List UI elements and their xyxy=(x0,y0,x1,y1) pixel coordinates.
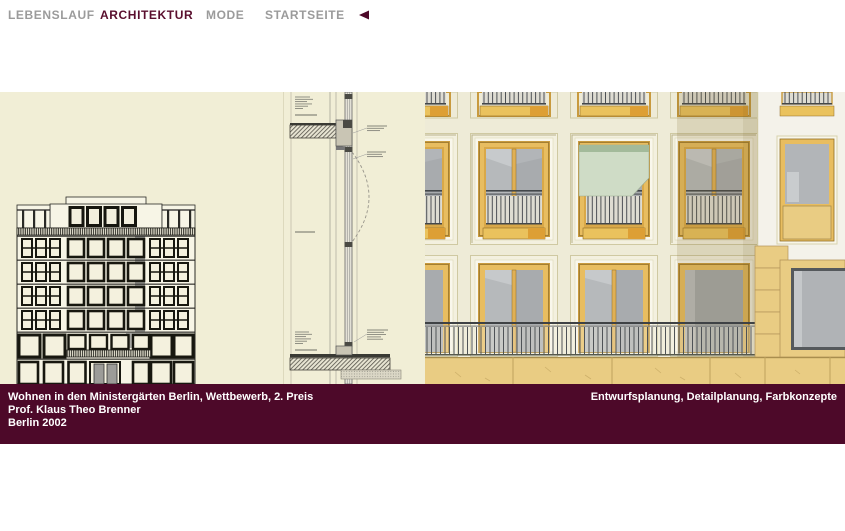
level-labels xyxy=(295,115,317,350)
image-strip xyxy=(0,92,845,384)
building-elevation-drawing xyxy=(0,92,283,384)
detail-section-panel xyxy=(283,92,425,384)
green-awning xyxy=(579,145,649,196)
facade-rendering-panel xyxy=(425,92,845,384)
nav-item-mode[interactable]: MODE xyxy=(206,8,244,22)
back-arrow-icon[interactable] xyxy=(358,10,370,20)
caption-services: Entwurfsplanung, Detailplanung, Farbkonz… xyxy=(591,391,837,404)
entrance-door xyxy=(90,362,120,384)
caption-bar: Wohnen in den Ministergärten Berlin, Wet… xyxy=(0,384,845,444)
sandstone-base xyxy=(425,357,845,384)
elevation-drawing-panel xyxy=(0,92,283,384)
bottom-slab xyxy=(290,346,401,379)
caption-author: Prof. Klaus Theo Brenner xyxy=(8,404,313,417)
page: LEBENSLAUF ARCHITEKTUR MODE STARTSEITE xyxy=(0,0,845,531)
caption-place-year: Berlin 2002 xyxy=(8,417,313,430)
nav-item-architektur[interactable]: ARCHITEKTUR xyxy=(100,8,193,22)
caption-project-title: Wohnen in den Ministergärten Berlin, Wet… xyxy=(8,391,313,404)
window-section-drawing xyxy=(283,92,425,384)
nav-item-lebenslauf[interactable]: LEBENSLAUF xyxy=(8,8,95,22)
caption-left: Wohnen in den Ministergärten Berlin, Wet… xyxy=(8,391,313,430)
facade-rendering xyxy=(425,92,845,384)
balcony-railing xyxy=(425,322,757,356)
top-slab xyxy=(290,120,352,146)
nav-item-startseite[interactable]: STARTSEITE xyxy=(265,8,345,22)
